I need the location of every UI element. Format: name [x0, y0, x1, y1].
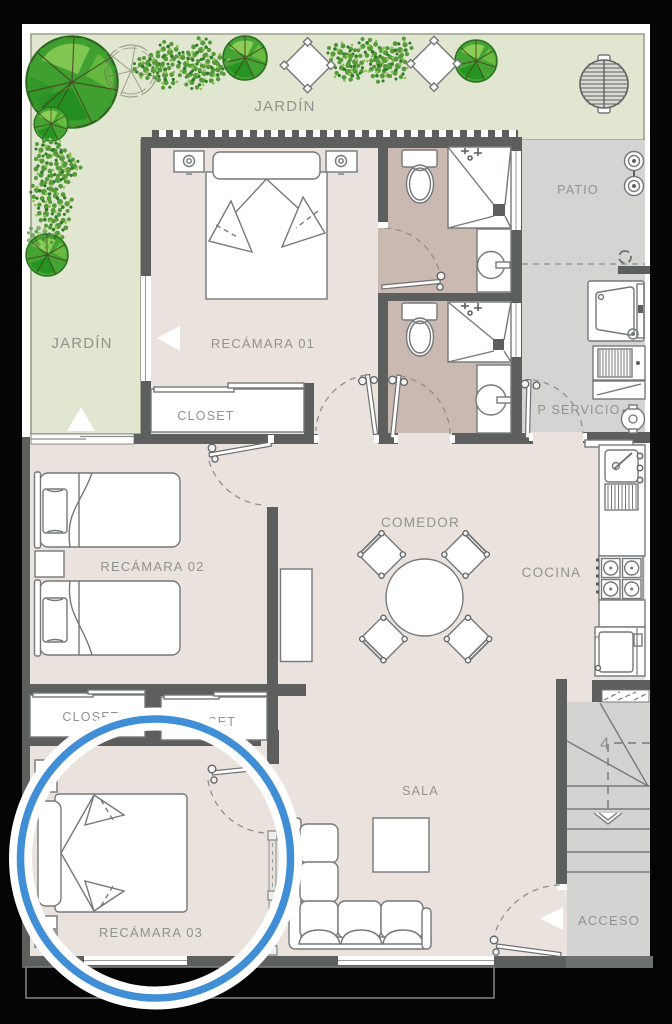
svg-text:RECÁMARA 03: RECÁMARA 03	[99, 925, 203, 940]
svg-text:RECÁMARA 02: RECÁMARA 02	[100, 559, 204, 574]
svg-text:P SERVICIO: P SERVICIO	[537, 403, 620, 417]
svg-text:SALA: SALA	[402, 784, 439, 798]
svg-text:CLOSET: CLOSET	[177, 409, 234, 423]
svg-text:COCINA: COCINA	[522, 565, 582, 580]
svg-text:JARDÍN: JARDÍN	[51, 335, 112, 352]
svg-text:4: 4	[600, 734, 611, 753]
svg-text:RECÁMARA 01: RECÁMARA 01	[211, 336, 315, 351]
svg-text:COMEDOR: COMEDOR	[381, 515, 460, 530]
svg-text:JARDÍN: JARDÍN	[254, 98, 315, 115]
svg-text:PATIO: PATIO	[557, 183, 599, 197]
svg-text:ACCESO: ACCESO	[578, 913, 640, 928]
